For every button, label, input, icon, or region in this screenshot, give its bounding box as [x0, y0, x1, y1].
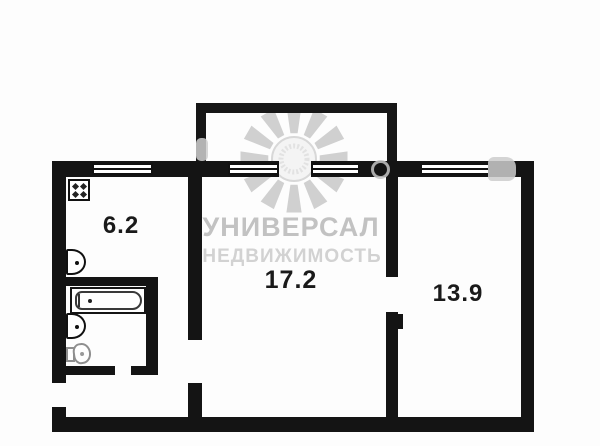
wall-right	[521, 161, 534, 432]
bedroom-area-label: 13.9	[417, 280, 499, 308]
wall-bathroom-bottom-left	[66, 366, 115, 375]
balcony-rail-top	[196, 103, 397, 113]
balcony-rail-right	[387, 103, 397, 163]
watermark-text-line2: НЕДВИЖИМОСТЬ	[198, 246, 386, 268]
wall-bathroom-right	[146, 277, 158, 375]
bedroom-window	[420, 163, 490, 175]
watermark-fragment	[488, 157, 516, 181]
kitchen-sink-icon	[66, 249, 86, 275]
wall-bathroom-top	[66, 277, 158, 286]
wall-living-bedroom-upper	[386, 177, 398, 277]
wall-left	[52, 161, 66, 383]
wall-living-bedroom-lower	[386, 312, 398, 417]
wall-bottom	[52, 417, 534, 432]
bathroom-sink-icon	[66, 313, 86, 339]
wall-hall-living-lower	[188, 383, 202, 417]
kitchen-area-label: 6.2	[86, 212, 156, 240]
balcony-window-left	[228, 163, 279, 175]
watermark-copyright-circle	[371, 160, 390, 179]
bathtub-icon	[70, 287, 146, 314]
watermark-fragment	[196, 138, 208, 161]
watermark-text-line1: УНИВЕРСАЛ	[198, 212, 384, 243]
toilet-icon	[66, 342, 92, 366]
wall-kitchen-living-upper	[188, 177, 202, 340]
floor-plan: УНИВЕРСАЛ НЕДВИЖИМОСТЬ	[0, 0, 600, 446]
living-room-area-label: 17.2	[250, 266, 332, 295]
stove-icon	[68, 179, 90, 201]
kitchen-window	[92, 163, 153, 175]
wall-bathroom-bottom-right	[131, 366, 158, 375]
door-jamb-tick	[398, 314, 403, 329]
balcony-window-right	[311, 163, 360, 175]
